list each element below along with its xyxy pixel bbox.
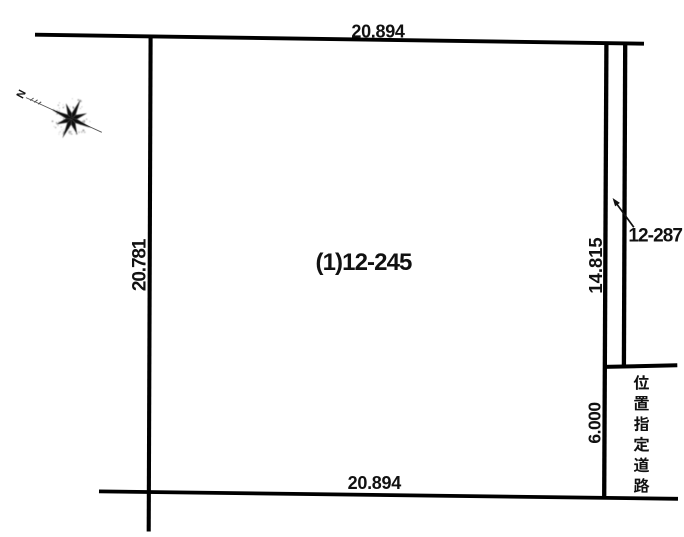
svg-text:20.894: 20.894 xyxy=(351,22,405,42)
svg-text:14.815: 14.815 xyxy=(585,237,606,293)
svg-text:6.000: 6.000 xyxy=(585,402,605,444)
svg-text:12-287: 12-287 xyxy=(628,225,682,246)
svg-text:20.781: 20.781 xyxy=(130,238,151,291)
svg-text:(1)12-245: (1)12-245 xyxy=(316,249,413,276)
svg-text:20.894: 20.894 xyxy=(348,473,402,493)
